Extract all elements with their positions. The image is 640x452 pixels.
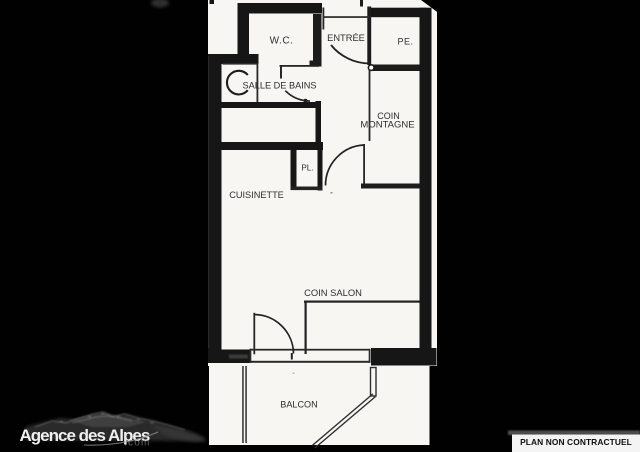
svg-text:SALLE DE BAINS: SALLE DE BAINS	[242, 81, 316, 91]
svg-text:MONTAGNE: MONTAGNE	[360, 120, 414, 131]
svg-text:PLAN NON CONTRACTUEL: PLAN NON CONTRACTUEL	[520, 437, 632, 447]
svg-text:ENTRÉE: ENTRÉE	[327, 33, 365, 43]
svg-text:CUISINETTE: CUISINETTE	[229, 190, 284, 200]
svg-text:W.C.: W.C.	[270, 36, 294, 47]
svg-text:PL.: PL.	[301, 164, 313, 173]
svg-text:BALCON: BALCON	[280, 400, 317, 410]
svg-text:COIN SALON: COIN SALON	[304, 287, 362, 298]
svg-text:.com: .com	[124, 438, 150, 449]
svg-text:PE.: PE.	[397, 37, 413, 47]
